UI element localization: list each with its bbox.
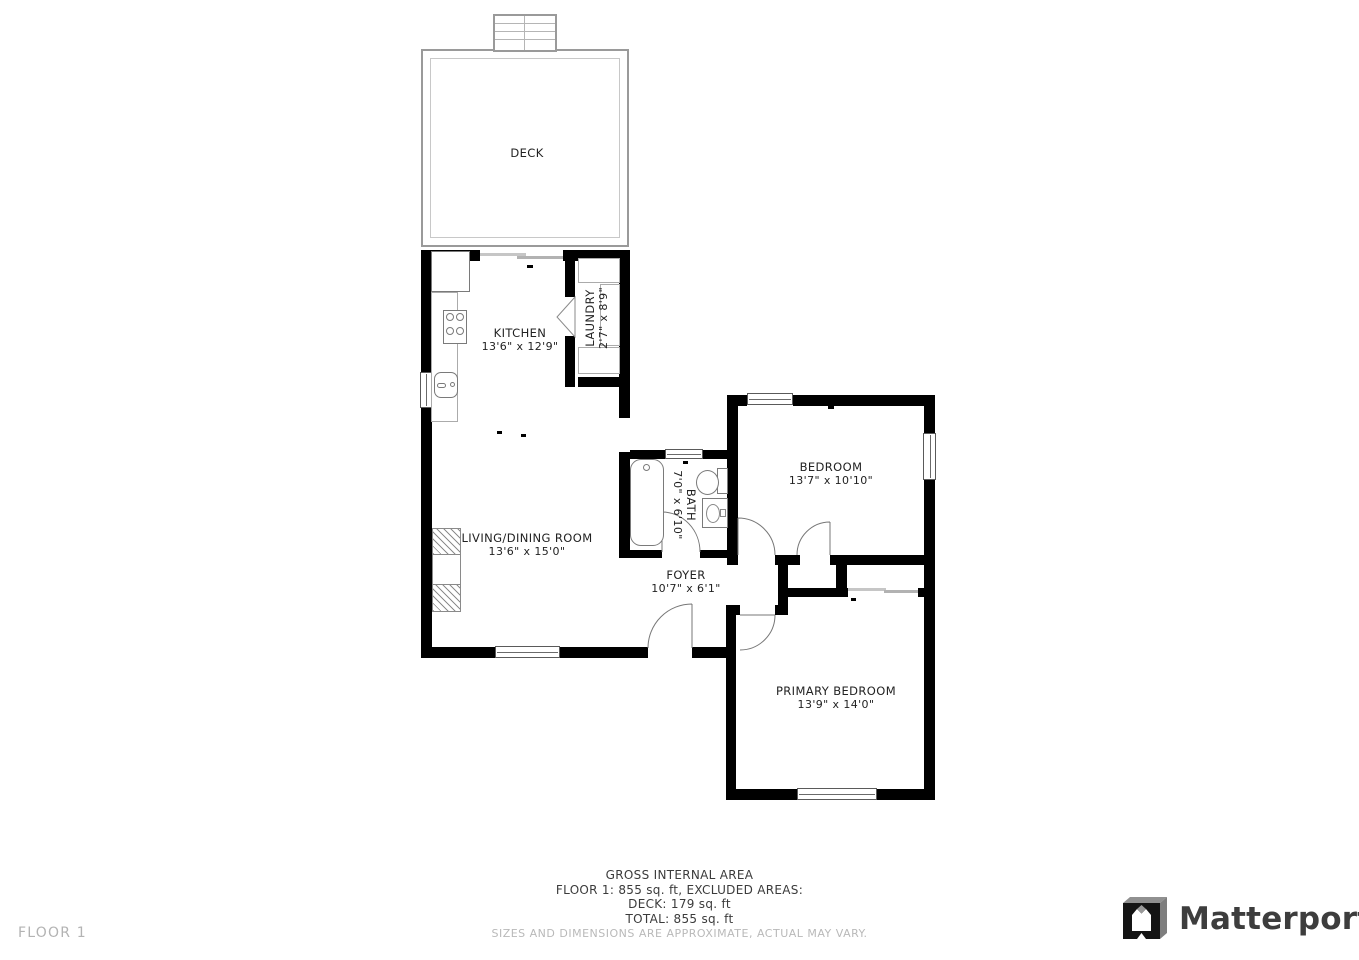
stove-burner	[456, 327, 464, 335]
deck-stair-step	[495, 31, 555, 32]
wall	[630, 450, 665, 459]
wall	[565, 336, 575, 387]
wall	[565, 250, 575, 297]
staircase-hatch	[433, 529, 460, 555]
wall-tick	[521, 434, 526, 437]
room-name: PRIMARY BEDROOM	[776, 684, 896, 698]
stove-burner	[456, 313, 464, 321]
room-name: FOYER	[651, 568, 720, 582]
room-label-deck: DECK	[510, 146, 543, 160]
wall	[877, 789, 935, 800]
room-name: BATH	[684, 470, 698, 539]
closet-slider-door	[884, 590, 918, 593]
wall	[619, 452, 630, 558]
wall-tick	[828, 406, 834, 409]
summary-floor-line: FLOOR 1: 855 sq. ft, EXCLUDED AREAS:	[491, 883, 867, 898]
matterport-icon	[1118, 894, 1168, 944]
room-dimensions: 13'9" x 14'0"	[776, 698, 896, 712]
deck-stair-step	[495, 23, 555, 24]
wall	[619, 550, 662, 558]
wall	[619, 250, 630, 387]
room-name: KITCHEN	[482, 326, 559, 340]
deck-stairs	[493, 14, 557, 52]
deck-stair-rail	[524, 16, 525, 50]
vanity-item	[720, 509, 726, 517]
front-door-arc	[648, 604, 692, 648]
wall	[788, 588, 848, 597]
room-label-bedroom: BEDROOM 13'7" x 10'10"	[789, 460, 873, 488]
room-label-bath: BATH 7'0" x 6'10"	[670, 470, 698, 539]
matterport-wordmark: Matterport	[1179, 901, 1359, 937]
staircase-landing	[433, 555, 460, 585]
bedroom-door-arc	[738, 518, 775, 555]
stove-burner	[446, 327, 454, 335]
room-dimensions: 13'7" x 10'10"	[789, 474, 873, 488]
primary-bedroom-door-arc	[740, 615, 775, 650]
room-dimensions: 10'7" x 6'1"	[651, 582, 720, 596]
washer	[578, 258, 620, 283]
wall	[560, 647, 648, 658]
window	[495, 646, 560, 658]
summary-total-line: TOTAL: 855 sq. ft	[491, 912, 867, 927]
wall-tick	[683, 461, 688, 464]
window	[923, 433, 936, 480]
room-label-laundry: LAUNDRY 2'7" x 8'9"	[583, 287, 611, 349]
wall	[421, 647, 495, 658]
kitchen-faucet	[437, 383, 446, 388]
sink-drain	[450, 382, 455, 387]
window	[747, 393, 793, 405]
area-summary: GROSS INTERNAL AREA FLOOR 1: 855 sq. ft,…	[491, 868, 867, 942]
floor-label: FLOOR 1	[18, 925, 87, 941]
vanity-sink	[706, 504, 720, 523]
wall-tick	[527, 265, 533, 268]
room-dimensions: 13'6" x 15'0"	[461, 545, 592, 559]
wall	[700, 550, 737, 558]
wall	[726, 789, 797, 800]
wall	[619, 377, 630, 418]
wall	[793, 395, 935, 406]
bedroom-closet-door-arc	[797, 522, 830, 555]
summary-title: GROSS INTERNAL AREA	[491, 868, 867, 883]
summary-disclaimer: SIZES AND DIMENSIONS ARE APPROXIMATE, AC…	[491, 927, 867, 942]
room-name: DECK	[510, 146, 543, 160]
room-dimensions: 2'7" x 8'9"	[597, 287, 611, 349]
dryer	[578, 347, 620, 374]
laundry-bifold-door	[556, 296, 576, 338]
room-name: LAUNDRY	[583, 287, 597, 349]
wall	[692, 647, 736, 658]
tub-faucet	[643, 464, 650, 471]
window	[797, 788, 877, 800]
wall-tick	[497, 431, 502, 434]
summary-deck-line: DECK: 179 sq. ft	[491, 897, 867, 912]
room-label-kitchen: KITCHEN 13'6" x 12'9"	[482, 326, 559, 354]
deck-stair-step	[495, 39, 555, 40]
wall	[775, 605, 788, 615]
wall	[918, 588, 926, 597]
refrigerator	[431, 251, 470, 292]
bath-pocket-door	[665, 449, 703, 459]
wall	[727, 395, 747, 406]
wall	[726, 605, 736, 800]
wall-tick	[851, 598, 856, 601]
floor-plan-page: DECK KITCHEN 13'6" x 12'9" LAUNDRY 2'7" …	[0, 0, 1359, 960]
patio-slider-door	[517, 256, 563, 259]
matterport-logo: Matterport	[1118, 894, 1359, 944]
room-dimensions: 7'0" x 6'10"	[670, 470, 684, 539]
room-label-primary-bedroom: PRIMARY BEDROOM 13'9" x 14'0"	[776, 684, 896, 712]
room-label-foyer: FOYER 10'7" x 6'1"	[651, 568, 720, 596]
toilet-bowl	[696, 470, 719, 495]
room-name: BEDROOM	[789, 460, 873, 474]
room-label-living-dining: LIVING/DINING ROOM 13'6" x 15'0"	[461, 531, 592, 559]
staircase	[432, 528, 461, 612]
closet-slider-door	[848, 588, 886, 591]
room-name: LIVING/DINING ROOM	[461, 531, 592, 545]
stove-burner	[446, 313, 454, 321]
room-dimensions: 13'6" x 12'9"	[482, 340, 559, 354]
wall	[830, 555, 935, 565]
wall	[727, 395, 738, 565]
bathtub	[630, 459, 664, 546]
staircase-hatch	[433, 585, 460, 611]
